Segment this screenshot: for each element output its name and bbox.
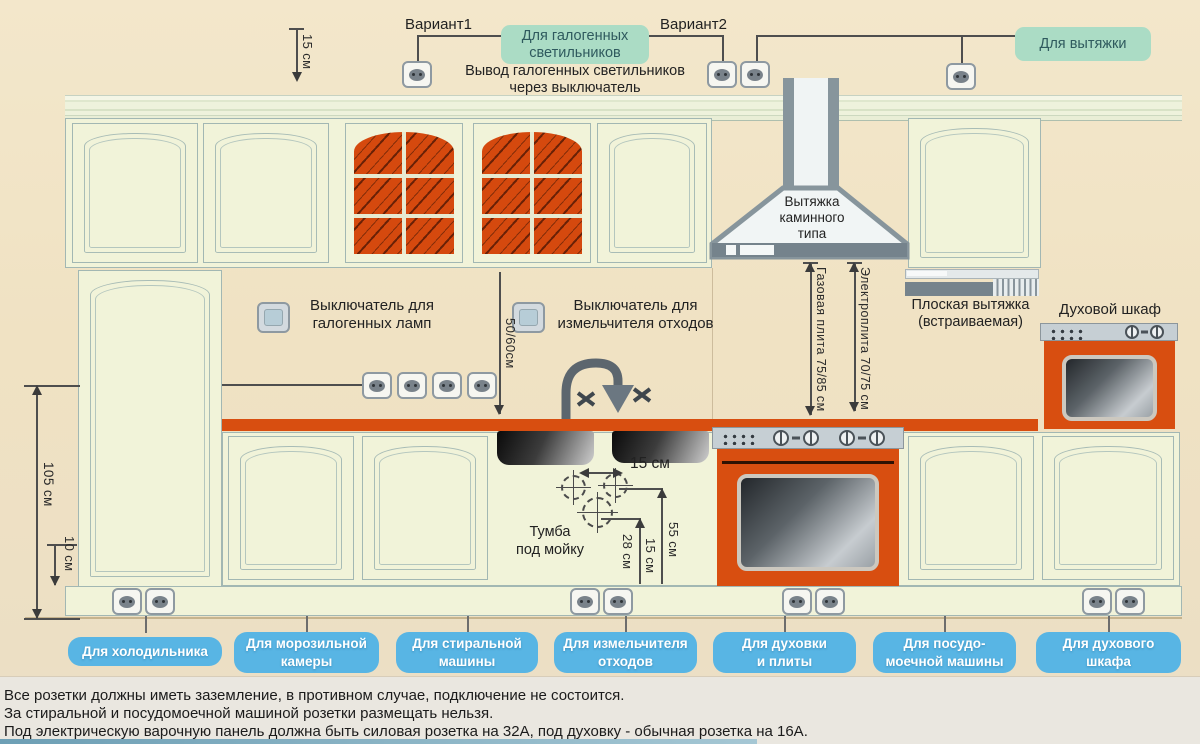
arrowhead bbox=[50, 576, 60, 586]
bottom-edge-bar bbox=[0, 739, 757, 744]
label-connector bbox=[625, 616, 627, 633]
door-panel bbox=[374, 446, 476, 570]
wiring-line bbox=[961, 35, 963, 64]
dim-105-label: 105 см bbox=[41, 462, 56, 507]
glass-pane bbox=[406, 132, 454, 174]
switch-halogen-label: Выключатель для галогенных ламп bbox=[293, 297, 451, 333]
wiring-line bbox=[756, 35, 758, 62]
wall-edge-line bbox=[712, 268, 713, 419]
wiring-line bbox=[722, 35, 724, 62]
door-panel bbox=[240, 446, 342, 570]
power-socket bbox=[1115, 588, 1145, 615]
label-connector bbox=[944, 616, 946, 633]
oven-control-dots bbox=[1048, 327, 1084, 340]
power-socket bbox=[815, 588, 845, 615]
power-socket bbox=[603, 588, 633, 615]
wiring-line bbox=[649, 35, 723, 37]
footer-note-1: Все розетки должны иметь заземление, в п… bbox=[4, 687, 624, 704]
dimension-line-electric bbox=[854, 263, 856, 411]
burner-knob-icon bbox=[772, 430, 828, 446]
arrowhead bbox=[635, 518, 645, 528]
door-panel bbox=[1054, 446, 1162, 570]
arrowhead bbox=[494, 405, 504, 415]
footer-note-2: За стиральной и посудомоечной машиной ро… bbox=[4, 705, 493, 722]
dimension-line-105 bbox=[36, 386, 38, 618]
footer-notes: Все розетки должны иметь заземление, в п… bbox=[0, 676, 1200, 744]
glass-pane bbox=[534, 178, 582, 214]
hood-chimney bbox=[783, 78, 839, 188]
sink-dim-55: 55 см bbox=[666, 522, 681, 558]
flat-hood-highlight bbox=[907, 271, 947, 276]
base-cabinet-door bbox=[362, 436, 488, 580]
dimension-line-28 bbox=[639, 519, 641, 584]
flat-hood-label: Плоская вытяжка (встраиваемая) bbox=[888, 297, 1053, 330]
variant2-label: Вариант2 bbox=[660, 16, 727, 33]
stove-control-dots bbox=[720, 432, 756, 445]
glass-pane bbox=[482, 178, 530, 214]
dimension-line-gas bbox=[810, 263, 812, 415]
power-socket bbox=[570, 588, 600, 615]
power-socket bbox=[432, 372, 462, 399]
kitchen-wiring-diagram: Плоская вытяжка (встраиваемая) Вытяжка к… bbox=[0, 0, 1200, 744]
oven-label: Духовой шкаф bbox=[1040, 301, 1180, 318]
dimension-line-55 bbox=[661, 489, 663, 584]
power-socket bbox=[112, 588, 142, 615]
arrowhead bbox=[32, 609, 42, 619]
sink-dim-15-top: 15 см bbox=[630, 455, 670, 473]
upper-cabinet-door bbox=[203, 123, 329, 263]
variant1-label: Вариант1 bbox=[405, 16, 472, 33]
power-socket bbox=[782, 588, 812, 615]
door-panel bbox=[609, 133, 695, 253]
door-panel bbox=[84, 133, 186, 253]
power-socket bbox=[1082, 588, 1112, 615]
outlet-label-washer: Для стиральной машины bbox=[396, 632, 538, 673]
dimension-line-50-60 bbox=[499, 272, 501, 414]
power-socket bbox=[740, 61, 770, 88]
sink-dim-15-mid: 15 см bbox=[643, 538, 658, 574]
outlet-label-disposer: Для измельчителя отходов bbox=[554, 632, 697, 673]
arrowhead bbox=[292, 72, 302, 82]
glass-pane bbox=[482, 218, 530, 254]
socket-feed-line bbox=[222, 384, 362, 386]
power-socket bbox=[467, 372, 497, 399]
burner-knob-icon bbox=[838, 430, 894, 446]
faucet-icon bbox=[550, 349, 660, 421]
halogen-note: Вывод галогенных светильников через выкл… bbox=[445, 63, 705, 98]
flat-hood-bar bbox=[905, 282, 993, 296]
arrowhead bbox=[613, 468, 623, 478]
stove-trim-line bbox=[722, 461, 894, 464]
upper-cabinet-door bbox=[597, 123, 707, 263]
electric-dimension-label: Электроплита 70/75 см bbox=[858, 267, 872, 410]
outlet-label-freezer: Для морозильной камеры bbox=[234, 632, 379, 673]
arrowhead bbox=[579, 468, 589, 478]
label-connector bbox=[467, 616, 469, 633]
power-socket bbox=[402, 61, 432, 88]
outlet-label-dishwasher: Для посудо- моечной машины bbox=[873, 632, 1016, 673]
door-panel bbox=[215, 133, 317, 253]
wiring-line bbox=[417, 35, 502, 37]
base-cabinet-door bbox=[1042, 436, 1174, 580]
power-socket bbox=[362, 372, 392, 399]
label-connector bbox=[1108, 616, 1110, 633]
floor-line bbox=[25, 617, 1182, 619]
halogen-tag: Для галогенных светильников bbox=[501, 25, 649, 64]
hood-tag: Для вытяжки bbox=[1015, 27, 1151, 61]
door-panel bbox=[920, 128, 1029, 258]
power-socket bbox=[145, 588, 175, 615]
upper-cabinet-door bbox=[72, 123, 198, 263]
dim-15-label: 15 см bbox=[300, 34, 315, 70]
door-panel bbox=[920, 446, 1022, 570]
hood-label: Вытяжка каминного типа bbox=[742, 194, 882, 243]
glass-pane bbox=[354, 218, 402, 254]
upper-cabinet-glass-door bbox=[473, 123, 591, 263]
arrowhead bbox=[32, 385, 42, 395]
outlet-label-stove: Для духовки и плиты bbox=[713, 632, 856, 673]
gas-dimension-label: Газовая плита 75/85 см bbox=[814, 267, 828, 412]
stove-oven-window bbox=[737, 474, 879, 571]
label-connector bbox=[145, 616, 147, 633]
label-connector bbox=[306, 616, 308, 633]
glass-pane bbox=[406, 218, 454, 254]
base-cabinet-door bbox=[228, 436, 354, 580]
flat-hood bbox=[905, 269, 1039, 296]
burner-knob-icon bbox=[1124, 325, 1172, 339]
power-socket bbox=[946, 63, 976, 90]
sink-dim-28: 28 см bbox=[620, 534, 635, 570]
dim-10-label: 10 см bbox=[62, 536, 77, 572]
flat-hood-vents bbox=[993, 279, 1039, 296]
power-socket bbox=[397, 372, 427, 399]
arrowhead bbox=[657, 488, 667, 498]
oven-window bbox=[1062, 355, 1157, 421]
glass-pane bbox=[482, 132, 530, 174]
footer-note-3: Под электрическую варочную панель должна… bbox=[4, 723, 808, 740]
pipe-outlet-mark bbox=[561, 475, 586, 500]
sink-bowl bbox=[497, 431, 594, 465]
glass-pane bbox=[406, 178, 454, 214]
wiring-line bbox=[756, 35, 1015, 37]
outlet-label-fridge: Для холодильника bbox=[68, 637, 222, 666]
door-panel bbox=[90, 280, 210, 577]
switch-halogen bbox=[257, 302, 290, 333]
orange-glass bbox=[354, 132, 454, 254]
dim-50-60-label: 50/60см bbox=[503, 318, 518, 369]
orange-glass bbox=[482, 132, 582, 254]
base-cabinet-door bbox=[908, 436, 1034, 580]
sink-cabinet-label: Тумба под мойку bbox=[496, 523, 604, 559]
upper-cabinet-right bbox=[908, 118, 1041, 268]
glass-pane bbox=[354, 132, 402, 174]
outlet-label-oven: Для духового шкафа bbox=[1036, 632, 1181, 673]
glass-pane bbox=[534, 132, 582, 174]
wiring-line bbox=[417, 35, 419, 62]
power-socket bbox=[707, 61, 737, 88]
glass-pane bbox=[354, 178, 402, 214]
tall-cabinet bbox=[78, 270, 222, 587]
switch-disposer-label: Выключатель для измельчителя отходов bbox=[548, 297, 723, 333]
upper-cabinet-glass-door bbox=[345, 123, 463, 263]
glass-pane bbox=[534, 218, 582, 254]
dimension-line bbox=[586, 472, 616, 474]
label-connector bbox=[784, 616, 786, 633]
